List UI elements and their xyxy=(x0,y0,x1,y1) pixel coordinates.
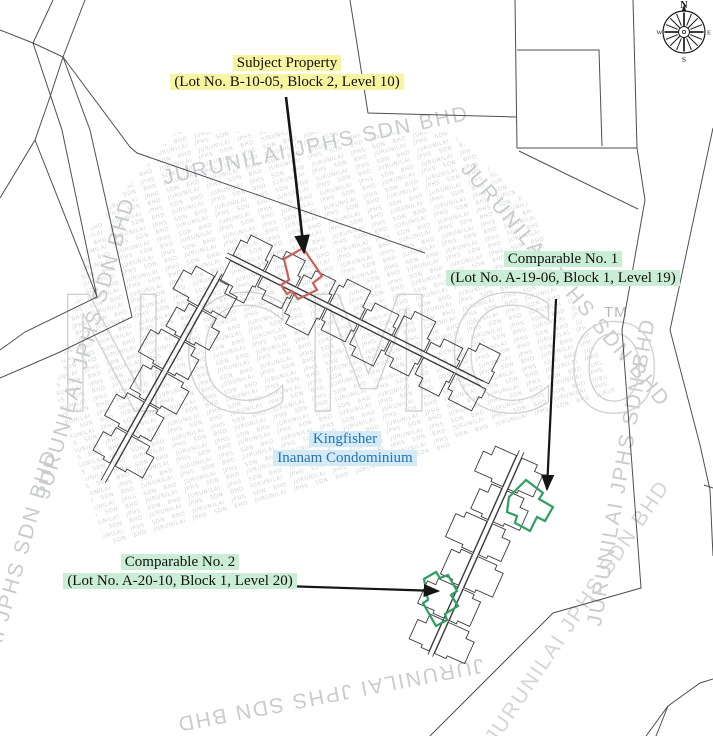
label-layer: Subject Property (Lot No. B-10-05, Block… xyxy=(0,0,713,736)
leader-lines xyxy=(283,97,556,591)
subject-unit-outline xyxy=(281,248,322,299)
compass-ray xyxy=(690,35,702,40)
subject-label-detail: (Lot No. B-10-05, Block 2, Level 10) xyxy=(170,74,403,90)
firm-watermark: JURUNILAI JPHS SDN BHD xyxy=(481,476,676,736)
comparable2-label-title: Comparable No. 2 xyxy=(121,554,239,570)
firm-watermark: JURUNILAI JPHS SDN BHD xyxy=(174,652,485,735)
subject-property-label: Subject Property (Lot No. B-10-05, Block… xyxy=(132,54,442,92)
compass-ray xyxy=(677,14,682,26)
building-outlines xyxy=(74,224,553,670)
parcel-lines xyxy=(0,0,713,736)
compass-south-label: S xyxy=(682,55,686,64)
condominium-name-label: Kingfisher Inanam Condominium xyxy=(243,430,447,468)
comparable1-label: Comparable No. 1 (Lot No. A-19-06, Block… xyxy=(420,250,706,288)
map-canvas xyxy=(0,0,713,736)
firm-watermark: JURUNILAI JPHS SDN BHD xyxy=(161,102,472,190)
compass-ray xyxy=(666,25,678,30)
comparable1-leader xyxy=(547,299,556,489)
firm-watermarks: JURUNILAI JPHS SDN BHD JURUNILAI JPHS SD… xyxy=(0,0,713,736)
firm-watermark: JURUNILAI JPHS SDN BHD xyxy=(0,447,63,736)
compass-east-label: E xyxy=(707,30,711,37)
subject-leader xyxy=(286,97,304,252)
condominium-name-line2: Inanam Condominium xyxy=(273,450,416,466)
comparable2-leader xyxy=(283,586,438,591)
comparable1-label-detail: (Lot No. A-19-06, Block 1, Level 19) xyxy=(446,270,679,286)
compass-ray xyxy=(690,25,702,30)
comparable2-unit-outline xyxy=(423,572,458,626)
compass-west-label: W xyxy=(656,30,663,37)
comparable2-label: Comparable No. 2 (Lot No. A-20-10, Block… xyxy=(32,553,328,591)
compass-north-label: N xyxy=(680,0,688,11)
trademark-symbol: TM xyxy=(604,304,628,321)
microtext-texture: JURUNILAI JPHS SDN BHD JURUNILAI JPHS SD… xyxy=(55,126,655,730)
compass-rose-icon: N W E S xyxy=(656,0,713,66)
building-wing xyxy=(211,224,503,418)
comparable1-unit-outline xyxy=(507,480,553,531)
subject-label-title: Subject Property xyxy=(233,55,341,71)
compass-ray xyxy=(687,14,692,26)
compass-ray xyxy=(677,38,682,50)
firm-watermark: JURUNILAI JPHS SDN BHD xyxy=(583,316,661,628)
ncmco-logo-watermark: NCMCo xyxy=(52,262,671,449)
comparable2-label-detail: (Lot No. A-20-10, Block 1, Level 20) xyxy=(63,573,296,589)
logo-watermark-layer: NCMCo TM xyxy=(0,0,713,736)
building-wing xyxy=(74,256,248,497)
compass-ray xyxy=(666,35,678,40)
compass-ray xyxy=(687,38,692,50)
firm-watermark: JURUNILAI JPHS SDN BHD xyxy=(31,195,140,502)
condominium-name-line1: Kingfisher xyxy=(309,431,381,447)
site-plan-page: JURUNILAI JPHS SDN BHD JURUNILAI JPHS SD… xyxy=(0,0,713,736)
building-wing xyxy=(398,437,553,670)
firm-watermark: JURUNILAI JPHS SDN BHD xyxy=(455,158,674,413)
comparable1-label-title: Comparable No. 1 xyxy=(504,251,622,267)
